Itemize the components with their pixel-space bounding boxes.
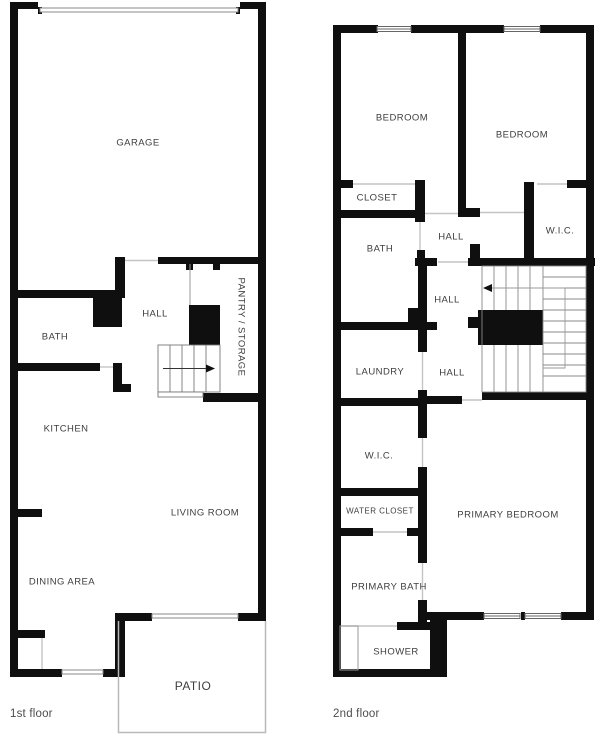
room-label-kitchen: KITCHEN: [44, 424, 89, 435]
room-label-shower: SHOWER: [373, 647, 418, 658]
room-label-hall-lower: HALL: [439, 368, 465, 379]
room-label-wic-left: W.I.C.: [365, 451, 394, 462]
first-floor-caption: 1st floor: [10, 708, 53, 720]
room-label-living-room: LIVING ROOM: [171, 508, 239, 519]
room-label-bedroom-right: BEDROOM: [496, 130, 548, 141]
room-label-wic-right: W.I.C.: [546, 226, 575, 237]
room-label-bath-2f: BATH: [367, 244, 393, 255]
floor-plan-canvas: 1st floor 2nd floor GARAGEBATHHALLPANTRY…: [0, 0, 600, 739]
second-floor-caption: 2nd floor: [333, 708, 380, 720]
room-label-hall-upper: HALL: [438, 232, 464, 243]
room-label-hall-middle: HALL: [434, 295, 460, 306]
room-label-closet: CLOSET: [357, 193, 398, 204]
room-label-primary-bedroom: PRIMARY BEDROOM: [457, 510, 558, 521]
room-label-patio: PATIO: [175, 679, 211, 693]
room-label-hall-1f: HALL: [142, 309, 168, 320]
room-label-primary-bath: PRIMARY BATH: [351, 582, 427, 593]
room-label-laundry: LAUNDRY: [356, 367, 404, 378]
room-label-dining-area: DINING AREA: [29, 577, 95, 588]
room-label-pantry-storage: PANTRY / STORAGE: [236, 278, 247, 377]
room-label-garage: GARAGE: [116, 138, 159, 149]
room-label-water-closet: WATER CLOSET: [346, 507, 414, 516]
room-label-bath-1f: BATH: [42, 332, 68, 343]
room-label-bedroom-left: BEDROOM: [376, 113, 428, 124]
room-labels-layer: 1st floor 2nd floor GARAGEBATHHALLPANTRY…: [0, 0, 600, 739]
